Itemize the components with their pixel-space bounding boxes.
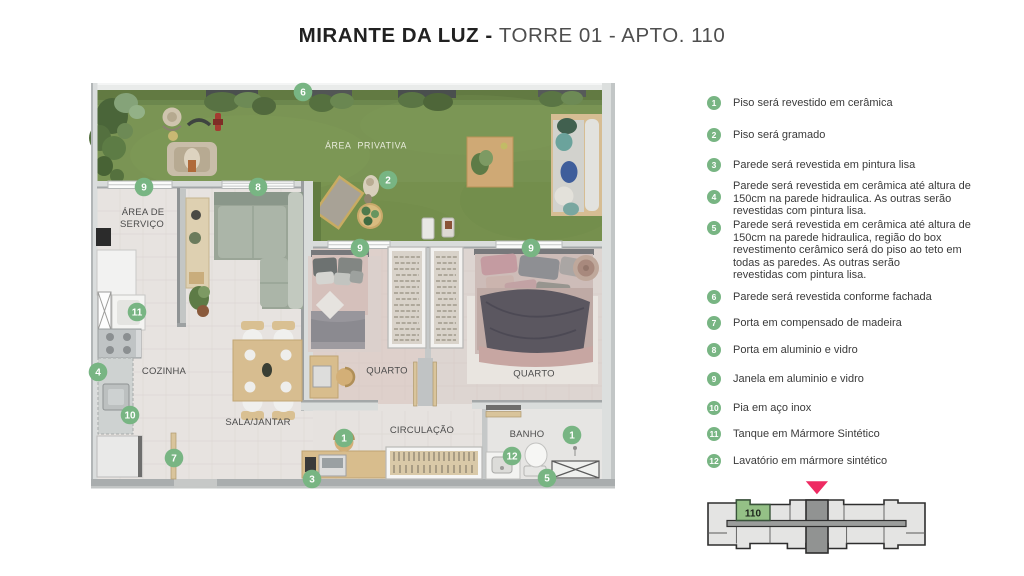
svg-text:QUARTO: QUARTO — [513, 369, 555, 380]
svg-text:BANHO: BANHO — [510, 429, 545, 440]
svg-text:COZINHA: COZINHA — [142, 366, 187, 377]
svg-text:10: 10 — [124, 411, 136, 422]
svg-text:9: 9 — [528, 244, 534, 255]
svg-text:6: 6 — [300, 88, 306, 99]
svg-text:12: 12 — [506, 452, 518, 463]
svg-text:3: 3 — [309, 475, 315, 486]
svg-text:1: 1 — [569, 431, 575, 442]
svg-text:ÁREA PRIVATIVA: ÁREA PRIVATIVA — [325, 141, 407, 151]
svg-text:11: 11 — [132, 308, 143, 319]
svg-text:4: 4 — [95, 368, 101, 379]
svg-text:9: 9 — [141, 183, 147, 194]
svg-text:SERVIÇO: SERVIÇO — [120, 219, 164, 230]
svg-text:9: 9 — [357, 244, 363, 255]
svg-text:1: 1 — [341, 434, 347, 445]
svg-text:8: 8 — [255, 183, 261, 194]
svg-text:110: 110 — [745, 509, 762, 520]
svg-text:2: 2 — [385, 176, 391, 187]
svg-text:5: 5 — [544, 474, 550, 485]
svg-text:ÁREA DE: ÁREA DE — [122, 207, 165, 218]
svg-text:7: 7 — [171, 454, 177, 465]
svg-text:SALA/JANTAR: SALA/JANTAR — [225, 417, 290, 428]
svg-text:QUARTO: QUARTO — [366, 366, 408, 377]
svg-text:CIRCULAÇÃO: CIRCULAÇÃO — [390, 425, 454, 436]
